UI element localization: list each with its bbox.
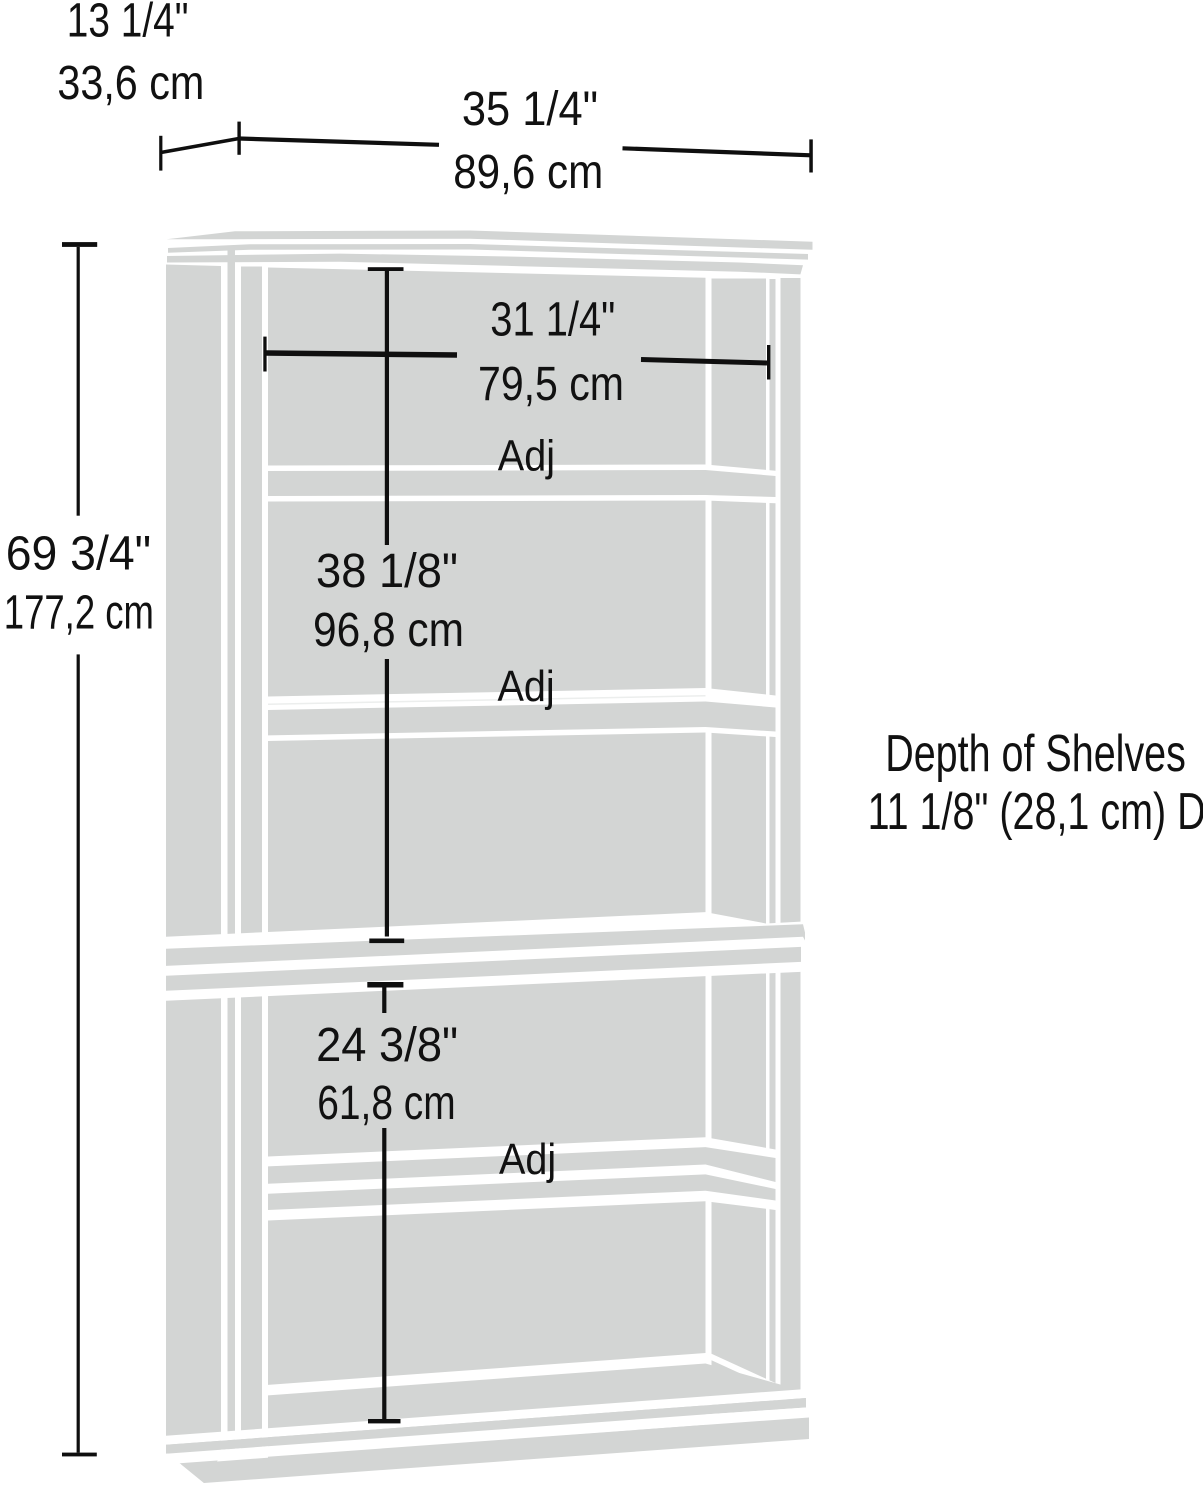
svg-text:35 1/4": 35 1/4" xyxy=(462,83,598,136)
svg-text:177,2 cm: 177,2 cm xyxy=(4,587,154,640)
svg-text:Adj: Adj xyxy=(499,1135,556,1184)
svg-text:61,8 cm: 61,8 cm xyxy=(317,1077,456,1130)
svg-text:24 3/8": 24 3/8" xyxy=(316,1019,458,1072)
svg-text:38 1/8": 38 1/8" xyxy=(316,545,458,598)
svg-text:Adj: Adj xyxy=(498,662,555,711)
svg-text:96,8 cm: 96,8 cm xyxy=(313,604,464,657)
svg-text:Depth of Shelves: Depth of Shelves xyxy=(885,725,1186,783)
svg-text:Adj: Adj xyxy=(498,432,555,481)
svg-text:31 1/4": 31 1/4" xyxy=(490,294,615,347)
svg-text:79,5 cm: 79,5 cm xyxy=(478,358,624,411)
svg-text:13 1/4": 13 1/4" xyxy=(67,0,189,47)
svg-text:33,6 cm: 33,6 cm xyxy=(57,57,204,110)
svg-text:11 1/8" (28,1 cm) D: 11 1/8" (28,1 cm) D xyxy=(868,783,1203,841)
svg-text:69 3/4": 69 3/4" xyxy=(6,527,151,580)
svg-text:89,6 cm: 89,6 cm xyxy=(453,146,603,199)
